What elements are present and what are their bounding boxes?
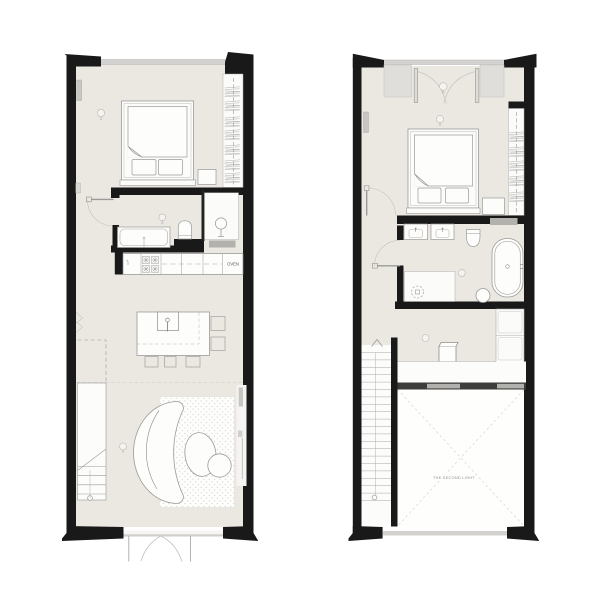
svg-text:OVEN: OVEN [227,262,239,267]
svg-text:THE SECOND LIGHT: THE SECOND LIGHT [433,476,475,480]
